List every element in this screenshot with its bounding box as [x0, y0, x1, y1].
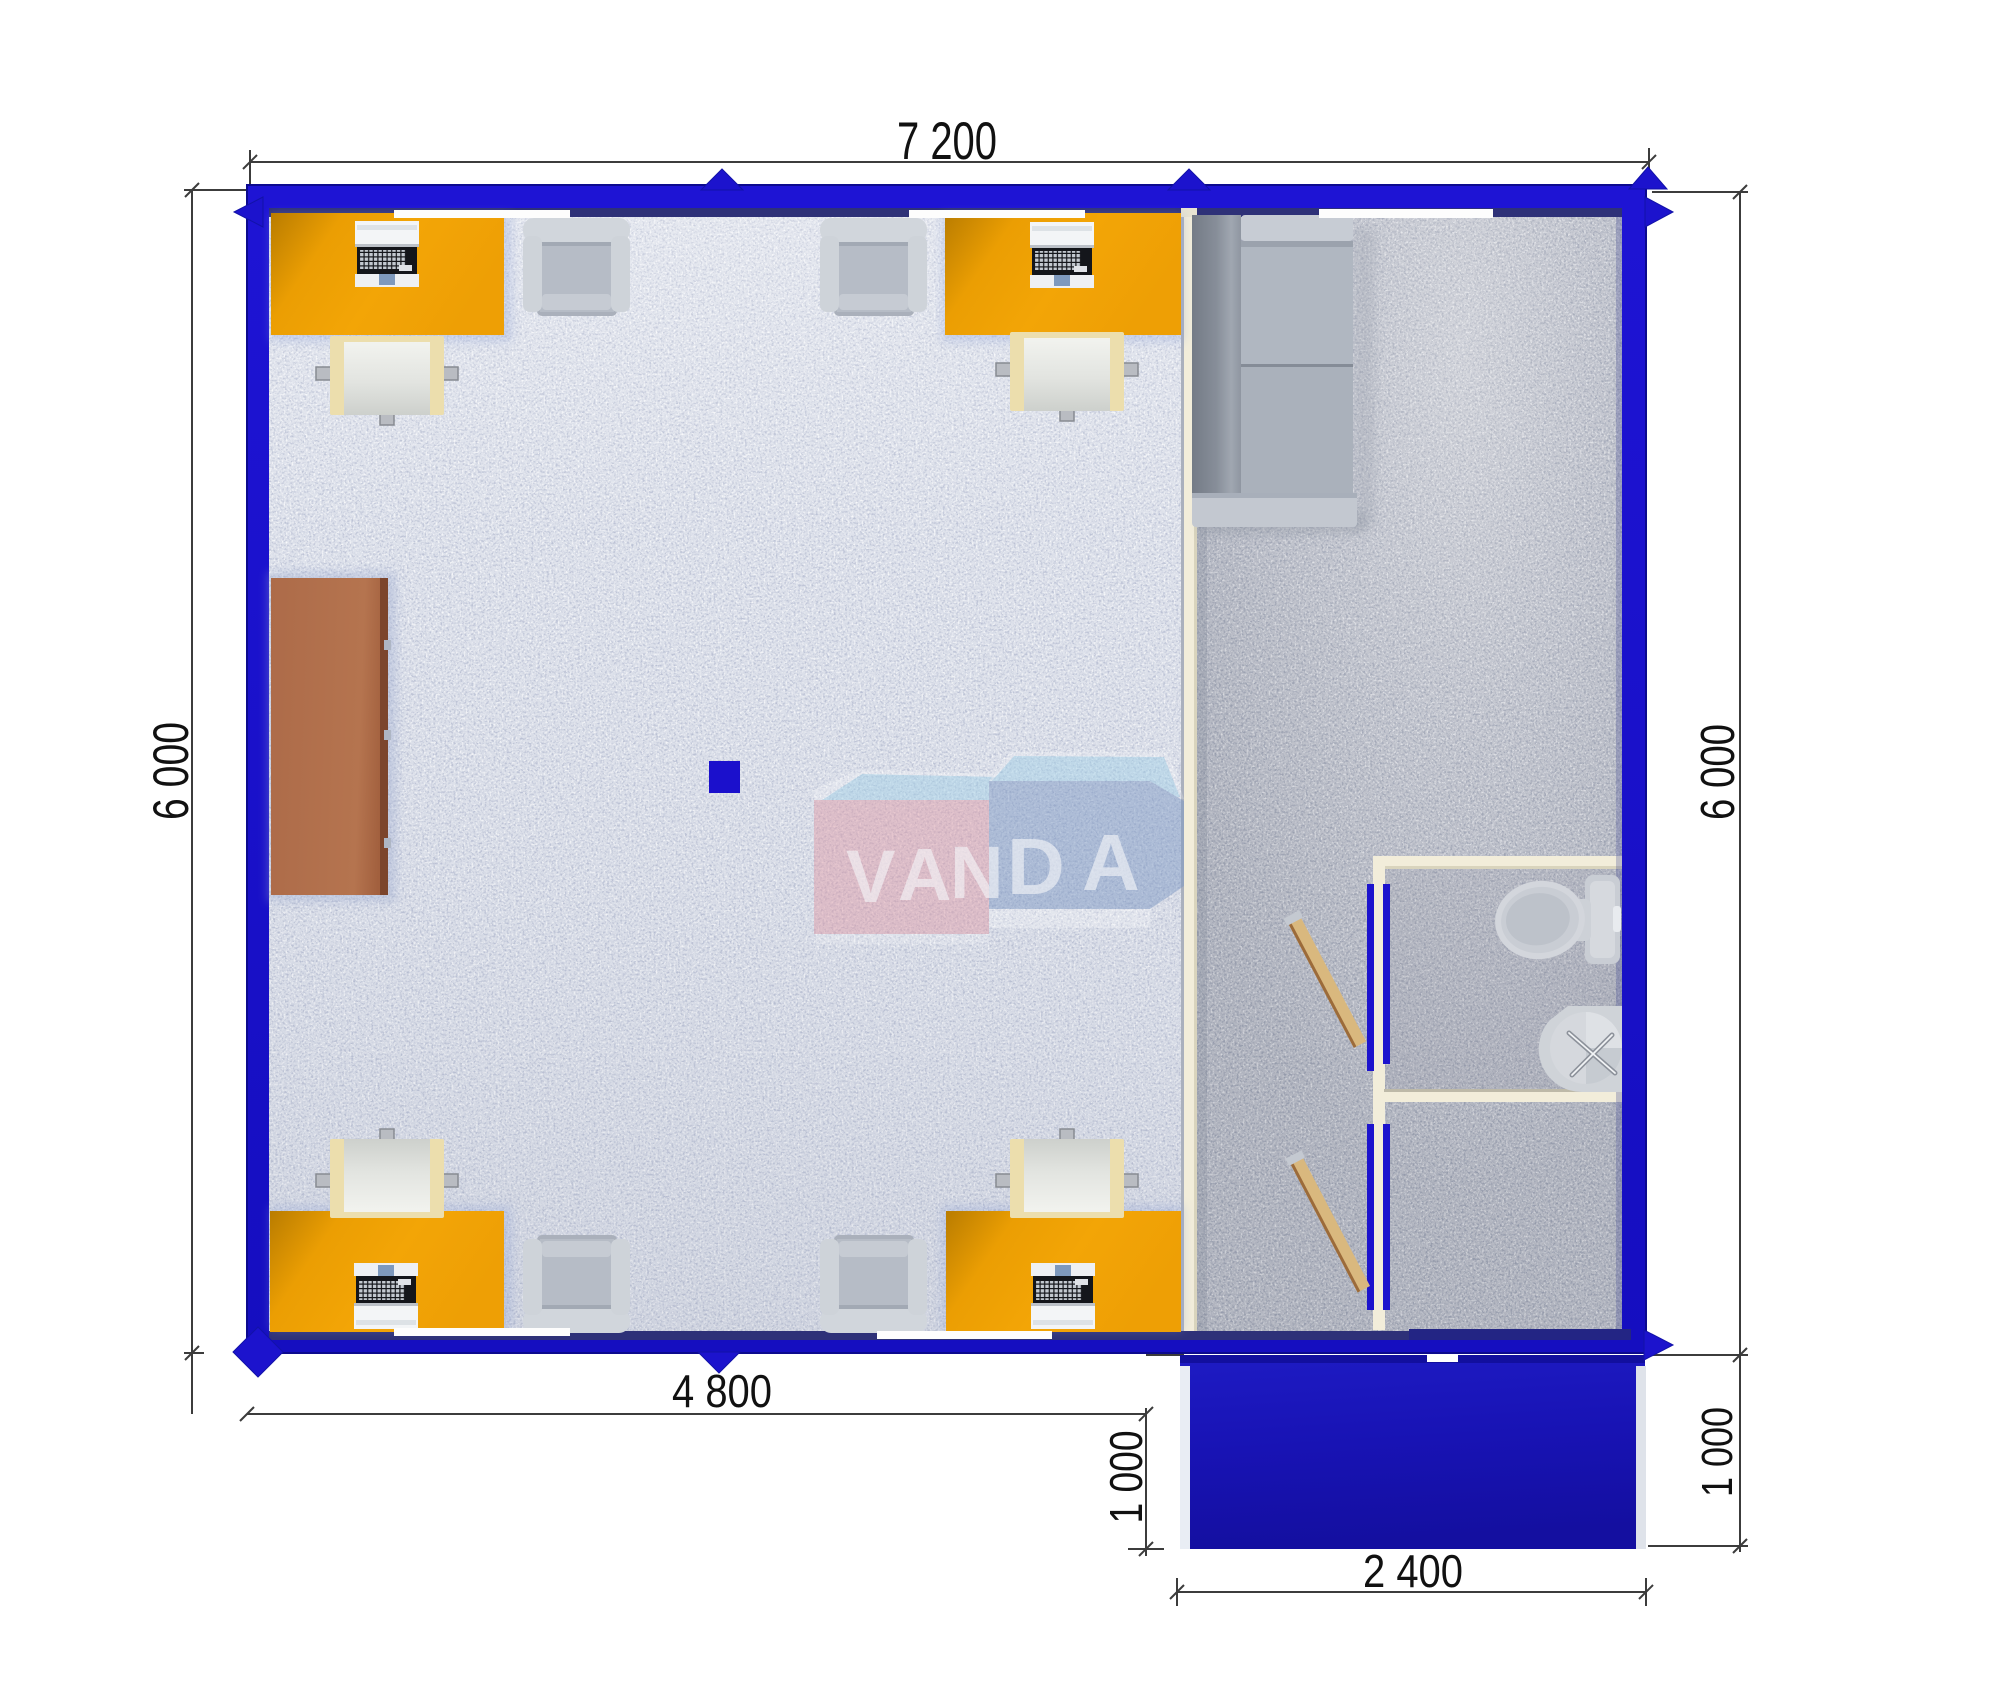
- svg-text:V: V: [846, 835, 895, 918]
- svg-text:A: A: [1082, 818, 1140, 907]
- svg-text:6 000: 6 000: [1692, 724, 1745, 820]
- svg-text:6 000: 6 000: [143, 722, 199, 820]
- svg-text:4 800: 4 800: [672, 1365, 772, 1417]
- svg-text:2 400: 2 400: [1363, 1545, 1463, 1597]
- svg-text:1 000: 1 000: [1693, 1407, 1742, 1497]
- svg-text:7 200: 7 200: [897, 112, 997, 171]
- svg-text:D: D: [1007, 822, 1065, 911]
- svg-text:N: N: [950, 831, 1003, 914]
- svg-text:1 000: 1 000: [1100, 1431, 1152, 1524]
- svg-text:A: A: [898, 833, 951, 916]
